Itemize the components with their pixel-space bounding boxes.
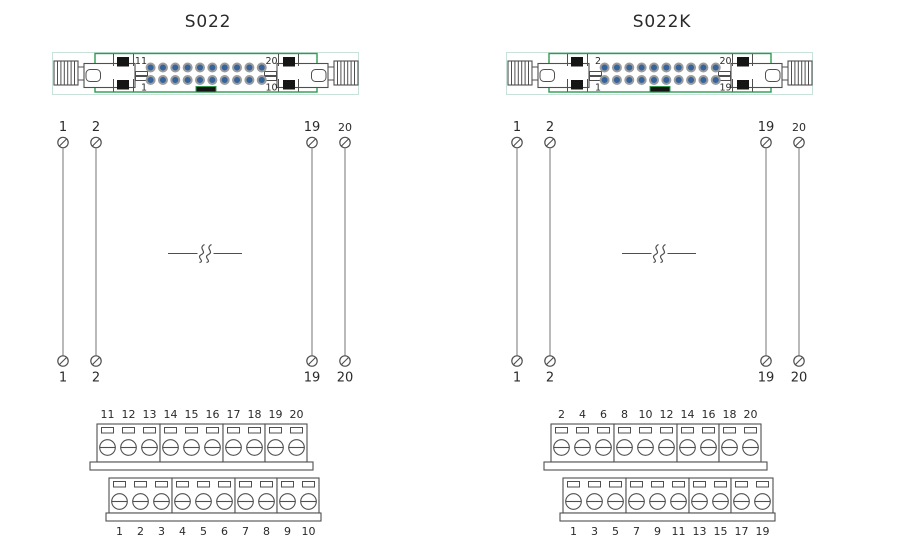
terminal-number: 20 (290, 408, 304, 421)
terminal-wire-slot (736, 482, 748, 488)
cable-break-symbol (622, 245, 696, 263)
terminal-block: 1112131415161718192012345678910 (90, 408, 321, 538)
terminal-number: 5 (200, 525, 207, 538)
ribbon-connector: 212019 (507, 53, 813, 95)
wiring-diagram-page: S022111201011221919202011121314151617181… (0, 0, 917, 550)
pin-dot (613, 76, 621, 84)
pin-dot (159, 64, 167, 72)
terminal-number: 10 (639, 408, 653, 421)
wire-number-bottom: 20 (791, 371, 808, 386)
plug-nose-bar (265, 72, 277, 76)
terminal-wire-slot (270, 428, 282, 434)
diagram-title: S022 (185, 12, 231, 32)
plug-latch (86, 70, 101, 82)
wire-number-bottom: 1 (513, 371, 521, 386)
terminal-number: 18 (248, 408, 262, 421)
pin-dot (245, 64, 253, 72)
terminal-number: 4 (579, 408, 586, 421)
pin-dot (221, 76, 229, 84)
terminal-wire-slot (156, 482, 168, 488)
terminal-wire-slot (219, 482, 231, 488)
plug-latch (766, 70, 781, 82)
pin-dot (625, 64, 633, 72)
pin-dot (675, 76, 683, 84)
pin-dot (625, 76, 633, 84)
terminal-number: 12 (660, 408, 674, 421)
terminal-wire-slot (757, 482, 769, 488)
terminal-number: 9 (654, 525, 661, 538)
pin-dot (662, 64, 670, 72)
polarization-key (117, 80, 129, 90)
terminal-block: 2468101214161820135791113151719 (544, 408, 775, 538)
polarization-key (571, 80, 583, 90)
terminal-wire-slot (715, 482, 727, 488)
terminal-wire-slot (228, 428, 240, 434)
terminal-rail (560, 513, 775, 521)
terminal-wire-slot (282, 482, 294, 488)
wire: 22 (91, 120, 101, 386)
terminal-wire-slot (568, 482, 580, 488)
terminal-wire-slot (640, 428, 652, 434)
wire: 2020 (791, 121, 808, 386)
pin-dot (208, 76, 216, 84)
terminal-number: 16 (702, 408, 716, 421)
terminal-wire-slot (610, 482, 622, 488)
terminal-number: 3 (158, 525, 165, 538)
pin-dot (245, 76, 253, 84)
terminal-number: 2 (137, 525, 144, 538)
terminal-number: 19 (756, 525, 770, 538)
wire-number-top: 20 (792, 121, 806, 134)
terminal-wire-slot (303, 482, 315, 488)
terminal-number: 12 (122, 408, 136, 421)
terminal-wire-slot (556, 428, 568, 434)
terminal-number: 3 (591, 525, 598, 538)
terminal-number: 5 (612, 525, 619, 538)
pin-dot (675, 64, 683, 72)
terminal-number: 9 (284, 525, 291, 538)
terminal-wire-slot (682, 428, 694, 434)
pin-dot (650, 64, 658, 72)
polarization-notch (196, 87, 216, 93)
terminal-wire-slot (102, 428, 114, 434)
terminal-number: 8 (621, 408, 628, 421)
wire-number-top: 19 (758, 120, 775, 135)
polarization-key (571, 57, 583, 67)
pin-dot (233, 76, 241, 84)
wire: 22 (545, 120, 555, 386)
pin-number: 11 (135, 56, 147, 67)
cable-neck (532, 67, 538, 80)
wire: 11 (58, 120, 68, 386)
terminal-wire-slot (619, 428, 631, 434)
wire-number-top: 1 (59, 120, 67, 135)
wire: 1919 (758, 120, 775, 386)
terminal-number: 1 (570, 525, 577, 538)
wire-number-bottom: 2 (546, 371, 554, 386)
pin-dot (159, 76, 167, 84)
break-squiggle (207, 245, 212, 263)
pin-dot (221, 64, 229, 72)
wire-number-top: 1 (513, 120, 521, 135)
pin-number: 1 (141, 83, 147, 94)
polarization-key (737, 80, 749, 90)
terminal-wire-slot (135, 482, 147, 488)
terminal-wire-slot (261, 482, 273, 488)
diagram-title: S022K (633, 12, 691, 32)
terminal-wire-slot (165, 428, 177, 434)
pin-dot (687, 64, 695, 72)
terminal-wire-slot (589, 482, 601, 488)
terminal-number: 10 (302, 525, 316, 538)
terminal-wire-slot (186, 428, 198, 434)
pin-dot (233, 64, 241, 72)
pin-dot (650, 76, 658, 84)
wire-number-bottom: 20 (337, 371, 354, 386)
terminal-number: 11 (672, 525, 686, 538)
cable-neck (782, 67, 788, 80)
wire-number-bottom: 19 (304, 371, 321, 386)
wire-number-top: 19 (304, 120, 321, 135)
wire: 11 (512, 120, 522, 386)
terminal-number: 2 (558, 408, 565, 421)
terminal-number: 17 (227, 408, 241, 421)
terminal-wire-slot (123, 428, 135, 434)
pin-number: 10 (266, 83, 278, 94)
terminal-number: 6 (600, 408, 607, 421)
terminal-rail (90, 462, 313, 470)
pin-dot (601, 64, 609, 72)
terminal-wire-slot (291, 428, 303, 434)
pin-number: 19 (720, 83, 732, 94)
terminal-wire-slot (207, 428, 219, 434)
break-squiggle (200, 245, 205, 263)
pin-dot (184, 76, 192, 84)
plug-nose-bar (719, 72, 731, 76)
pin-dot (184, 64, 192, 72)
break-squiggle (661, 245, 666, 263)
wire-number-top: 2 (92, 120, 100, 135)
pin-number: 2 (595, 56, 601, 67)
wire-number-top: 2 (546, 120, 554, 135)
pin-number: 1 (595, 83, 601, 94)
terminal-wire-slot (598, 428, 610, 434)
terminal-wire-slot (661, 428, 673, 434)
pin-dot (147, 76, 155, 84)
terminal-number: 15 (185, 408, 199, 421)
wire: 1919 (304, 120, 321, 386)
plug-nose-bar (590, 72, 602, 76)
terminal-number: 14 (681, 408, 695, 421)
terminal-wire-slot (240, 482, 252, 488)
plug-latch (540, 70, 555, 82)
pin-dot (638, 64, 646, 72)
terminal-number: 16 (206, 408, 220, 421)
terminal-number: 13 (143, 408, 157, 421)
terminal-wire-slot (198, 482, 210, 488)
terminal-number: 13 (693, 525, 707, 538)
terminal-number: 15 (714, 525, 728, 538)
pin-dot (662, 76, 670, 84)
terminal-number: 14 (164, 408, 178, 421)
pin-dot (699, 64, 707, 72)
pin-dot (171, 76, 179, 84)
pin-number: 20 (266, 56, 278, 67)
terminal-wire-slot (652, 482, 664, 488)
wiring-diagram-scene: S022111201011221919202011121314151617181… (0, 0, 917, 550)
terminal-wire-slot (745, 428, 757, 434)
terminal-wire-slot (694, 482, 706, 488)
pin-dot (147, 64, 155, 72)
terminal-wire-slot (703, 428, 715, 434)
polarization-key (737, 57, 749, 67)
terminal-number: 20 (744, 408, 758, 421)
terminal-wire-slot (249, 428, 261, 434)
wire-number-bottom: 2 (92, 371, 100, 386)
wire: 2020 (337, 121, 354, 386)
pin-number: 20 (720, 56, 732, 67)
pin-dot (171, 64, 179, 72)
terminal-number: 19 (269, 408, 283, 421)
terminal-wire-slot (631, 482, 643, 488)
pin-dot (196, 76, 204, 84)
terminal-number: 7 (633, 525, 640, 538)
wire-number-top: 20 (338, 121, 352, 134)
terminal-number: 1 (116, 525, 123, 538)
plug-latch (312, 70, 327, 82)
plug-nose-bar (136, 72, 148, 76)
terminal-wire-slot (724, 428, 736, 434)
pin-dot (699, 76, 707, 84)
cable-neck (78, 67, 84, 80)
polarization-key (283, 80, 295, 90)
pin-dot (687, 76, 695, 84)
pin-dot (208, 64, 216, 72)
terminal-number: 7 (242, 525, 249, 538)
terminal-rail (106, 513, 321, 521)
break-squiggle (654, 245, 659, 263)
terminal-wire-slot (144, 428, 156, 434)
diagram-S022K: S022K21201911221919202024681012141618201… (507, 12, 813, 538)
terminal-number: 6 (221, 525, 228, 538)
polarization-key (283, 57, 295, 67)
polarization-notch (650, 87, 670, 93)
polarization-key (117, 57, 129, 67)
pin-dot (196, 64, 204, 72)
terminal-wire-slot (577, 428, 589, 434)
terminal-wire-slot (673, 482, 685, 488)
wire-number-bottom: 19 (758, 371, 775, 386)
cable-break-symbol (168, 245, 242, 263)
ribbon-connector: 1112010 (53, 53, 359, 95)
terminal-number: 4 (179, 525, 186, 538)
terminal-number: 8 (263, 525, 270, 538)
pin-dot (638, 76, 646, 84)
pin-dot (613, 64, 621, 72)
diagram-S022: S022111201011221919202011121314151617181… (53, 12, 359, 538)
pin-dot (601, 76, 609, 84)
terminal-number: 17 (735, 525, 749, 538)
wire-number-bottom: 1 (59, 371, 67, 386)
terminal-number: 11 (101, 408, 115, 421)
terminal-wire-slot (114, 482, 126, 488)
cable-neck (328, 67, 334, 80)
terminal-number: 18 (723, 408, 737, 421)
terminal-wire-slot (177, 482, 189, 488)
terminal-rail (544, 462, 767, 470)
